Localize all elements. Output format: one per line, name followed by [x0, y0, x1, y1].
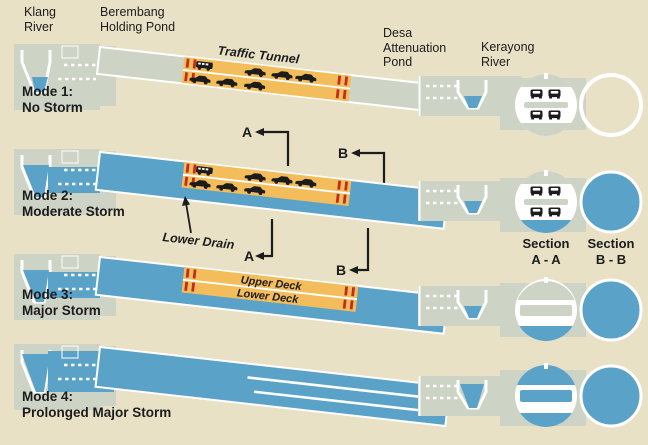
lower-drain-label: Lower Drain	[162, 230, 236, 252]
mode-3-desc: Major Storm	[22, 303, 101, 319]
klang-river-label: Klang River	[24, 5, 82, 34]
mode-2-name: Mode 2:	[22, 188, 125, 204]
desa-attenuation-pond-label: Desa Attenuation Pond	[383, 26, 463, 70]
section-cut-arrows-bottom: A B	[244, 219, 368, 278]
section-bb-circle-mode-4	[581, 366, 641, 426]
mode-2-desc: Moderate Storm	[22, 204, 125, 220]
section-bb-line2: B - B	[571, 252, 648, 268]
mode-2-tunnel	[96, 152, 448, 229]
section-bb-label: Section B - B	[571, 236, 648, 267]
mode-1-row	[14, 44, 641, 136]
mode-1-name: Mode 1:	[22, 84, 83, 100]
marker-a-top: A	[242, 124, 252, 140]
tunnel-modes-diagram: A B	[0, 0, 648, 445]
mode-4-label: Mode 4: Prolonged Major Storm	[22, 389, 171, 421]
mode-3-label: Mode 3: Major Storm	[22, 287, 101, 319]
mode-1-deck	[182, 57, 352, 102]
mode-4-name: Mode 4:	[22, 389, 171, 405]
section-bb-line1: Section	[571, 236, 648, 252]
diagram-canvas: A B	[0, 0, 648, 445]
section-bb-circle-mode-2	[581, 172, 641, 232]
lower-drain-arrow	[182, 196, 191, 233]
marker-a-bottom: A	[244, 248, 254, 264]
berembang-holding-pond-label: Berembang Holding Pond	[100, 5, 196, 34]
mode-1-label: Mode 1: No Storm	[22, 84, 83, 116]
mode-3-tunnel: Upper Deck Lower Deck	[96, 257, 448, 334]
section-bb-circle-mode-3	[581, 280, 641, 340]
mode-1-desc: No Storm	[22, 100, 83, 116]
marker-b-bottom: B	[336, 262, 346, 278]
kerayong-river-label: Kerayong River	[481, 40, 545, 69]
section-bb-circle-mode-1	[581, 75, 641, 135]
marker-b-top: B	[338, 145, 348, 161]
mode-4-desc: Prolonged Major Storm	[22, 405, 171, 421]
mode-2-label: Mode 2: Moderate Storm	[22, 188, 125, 220]
mode-3-name: Mode 3:	[22, 287, 101, 303]
